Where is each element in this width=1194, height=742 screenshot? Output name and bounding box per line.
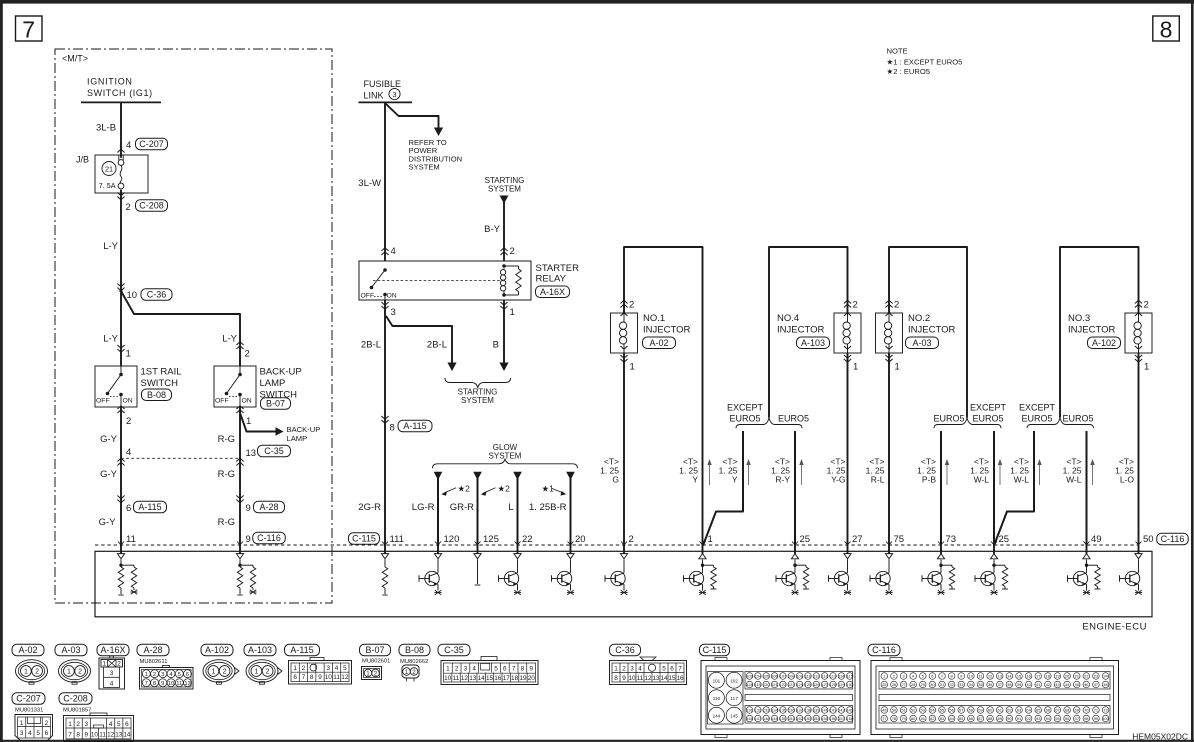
svg-text:19: 19 [519, 675, 527, 682]
svg-text:44: 44 [1065, 682, 1070, 687]
svg-text:EURO5: EURO5 [933, 414, 964, 424]
svg-text:1: 1 [895, 362, 900, 373]
svg-text:4: 4 [335, 665, 339, 672]
svg-text:55: 55 [940, 708, 945, 713]
svg-text:3: 3 [464, 666, 468, 673]
svg-text:NOTE: NOTE [887, 47, 908, 56]
svg-text:1: 1 [510, 307, 515, 318]
svg-text:1: 1 [614, 666, 618, 673]
svg-text:14: 14 [478, 675, 486, 682]
svg-text:EURO5: EURO5 [972, 414, 1003, 424]
svg-text:125: 125 [805, 682, 812, 687]
svg-text:9: 9 [246, 503, 251, 514]
svg-text:INJECTOR: INJECTOR [777, 325, 824, 336]
svg-text:1: 1 [20, 720, 24, 727]
svg-text:B-Y: B-Y [484, 224, 501, 235]
svg-text:C-207: C-207 [16, 694, 41, 704]
svg-text:SYSTEM: SYSTEM [461, 396, 494, 405]
svg-text:12: 12 [461, 675, 469, 682]
svg-text:91: 91 [1017, 716, 1022, 721]
svg-text:C-116: C-116 [1161, 534, 1185, 544]
svg-text:LAMP: LAMP [260, 378, 286, 389]
svg-text:73: 73 [946, 534, 957, 545]
svg-text:63: 63 [1017, 708, 1022, 713]
svg-text:6: 6 [670, 666, 674, 673]
svg-text:2: 2 [853, 300, 858, 311]
svg-text:134: 134 [771, 708, 778, 713]
svg-text:146: 146 [746, 716, 753, 721]
svg-text:126: 126 [813, 682, 820, 687]
svg-text:LG-R: LG-R [412, 502, 435, 513]
svg-text:45: 45 [1074, 682, 1079, 687]
svg-text:<M/T>: <M/T> [62, 54, 88, 64]
svg-text:1: 1 [293, 665, 297, 672]
svg-text:EURO5: EURO5 [729, 414, 760, 424]
svg-text:10: 10 [168, 681, 174, 687]
svg-text:11: 11 [637, 675, 644, 682]
svg-text:2: 2 [1144, 300, 1149, 311]
svg-text:LAMP: LAMP [287, 434, 308, 443]
svg-text:16: 16 [1026, 674, 1031, 679]
svg-text:ON: ON [242, 398, 252, 405]
svg-text:20: 20 [1065, 674, 1070, 679]
svg-text:62: 62 [1007, 708, 1012, 713]
svg-text:1: 1 [446, 666, 450, 673]
svg-text:78: 78 [892, 716, 897, 721]
svg-text:OFF: OFF [96, 398, 110, 405]
svg-text:151: 151 [788, 716, 795, 721]
svg-text:29: 29 [921, 682, 926, 687]
svg-text:1: 1 [708, 534, 713, 545]
svg-text:127: 127 [821, 682, 828, 687]
svg-text:1ST RAIL: 1ST RAIL [141, 367, 182, 378]
svg-text:13: 13 [998, 674, 1003, 679]
svg-text:5: 5 [36, 730, 40, 737]
svg-text:W-L: W-L [1066, 474, 1082, 484]
svg-text:1: 1 [853, 362, 858, 373]
svg-text:A-115: A-115 [290, 645, 313, 655]
svg-text:15: 15 [486, 675, 494, 682]
svg-text:A-115: A-115 [138, 502, 161, 512]
svg-text:11: 11 [126, 534, 136, 545]
svg-text:16: 16 [676, 675, 684, 682]
svg-text:Y: Y [732, 474, 738, 484]
svg-text:53: 53 [921, 708, 926, 713]
svg-text:G-Y: G-Y [100, 434, 118, 445]
svg-text:IGNITION: IGNITION [87, 77, 133, 87]
svg-text:103: 103 [746, 674, 753, 679]
svg-text:C-116: C-116 [257, 533, 281, 543]
svg-text:10: 10 [91, 732, 99, 739]
svg-text:2: 2 [302, 665, 306, 672]
svg-text:89: 89 [998, 716, 1003, 721]
svg-text:★2: ★2 [498, 484, 511, 494]
svg-text:A-28: A-28 [259, 502, 278, 512]
svg-text:72: 72 [1103, 708, 1108, 713]
svg-text:17: 17 [1036, 674, 1041, 679]
svg-text:ON: ON [387, 293, 397, 300]
svg-text:152: 152 [796, 716, 803, 721]
svg-text:A-02: A-02 [18, 645, 37, 655]
svg-text:OFF: OFF [361, 293, 375, 300]
svg-text:11: 11 [333, 674, 340, 681]
svg-text:P-B: P-B [922, 474, 937, 484]
svg-text:W-L: W-L [1014, 474, 1030, 484]
svg-text:8: 8 [153, 681, 156, 687]
svg-text:MU802601: MU802601 [362, 658, 390, 664]
svg-text:2: 2 [629, 300, 634, 311]
svg-text:GR-R: GR-R [450, 502, 474, 513]
svg-text:155: 155 [821, 716, 828, 721]
svg-text:19: 19 [1055, 674, 1060, 679]
svg-text:B-08: B-08 [405, 645, 424, 655]
svg-text:18: 18 [1046, 674, 1051, 679]
svg-text:INJECTOR: INJECTOR [908, 325, 955, 336]
svg-text:8: 8 [1160, 17, 1173, 43]
svg-text:156: 156 [830, 716, 837, 721]
svg-text:34: 34 [969, 682, 974, 687]
svg-text:110: 110 [805, 674, 812, 679]
svg-text:R-G: R-G [218, 469, 235, 480]
svg-text:EURO5: EURO5 [778, 414, 809, 424]
svg-text:A-03: A-03 [61, 645, 80, 655]
svg-text:6: 6 [503, 666, 507, 673]
svg-text:2: 2 [622, 666, 626, 673]
svg-text:A-102: A-102 [1092, 338, 1116, 348]
svg-text:R-Y: R-Y [775, 474, 790, 484]
svg-text:10: 10 [127, 290, 138, 301]
svg-text:14: 14 [1007, 674, 1012, 679]
svg-text:7: 7 [22, 17, 35, 43]
svg-text:145: 145 [730, 713, 738, 718]
svg-text:15: 15 [1017, 674, 1022, 679]
svg-text:27: 27 [901, 682, 906, 687]
svg-text:4: 4 [109, 721, 113, 728]
svg-text:100: 100 [1102, 716, 1109, 721]
svg-text:20: 20 [575, 534, 586, 545]
svg-text:105: 105 [763, 674, 770, 679]
svg-text:30: 30 [930, 682, 935, 687]
svg-text:4: 4 [28, 730, 32, 737]
svg-text:107: 107 [780, 674, 787, 679]
svg-text:L-O: L-O [1120, 474, 1135, 484]
svg-text:B: B [493, 340, 499, 351]
svg-text:138: 138 [805, 708, 812, 713]
svg-text:2: 2 [245, 349, 250, 360]
svg-text:INJECTOR: INJECTOR [643, 325, 690, 336]
svg-text:114: 114 [838, 674, 845, 679]
svg-text:A-03: A-03 [912, 338, 931, 348]
svg-text:137: 137 [796, 708, 803, 713]
svg-text:BACK-UP: BACK-UP [287, 425, 321, 434]
svg-text:96: 96 [1065, 716, 1070, 721]
svg-text:NO.1: NO.1 [643, 313, 665, 324]
svg-text:2: 2 [374, 670, 378, 677]
svg-text:7: 7 [145, 681, 148, 687]
svg-text:4: 4 [110, 680, 114, 687]
svg-text:12: 12 [644, 675, 652, 682]
svg-text:40: 40 [1026, 682, 1031, 687]
svg-text:21: 21 [1074, 674, 1079, 679]
svg-text:C-35: C-35 [444, 645, 464, 655]
svg-text:22: 22 [522, 534, 533, 545]
svg-text:158: 158 [846, 716, 853, 721]
svg-text:16: 16 [494, 675, 502, 682]
svg-text:65: 65 [1036, 708, 1041, 713]
svg-text:149: 149 [771, 716, 778, 721]
svg-text:1: 1 [630, 362, 635, 373]
svg-text:LINK: LINK [364, 90, 384, 100]
svg-text:122: 122 [780, 682, 787, 687]
svg-text:119: 119 [755, 682, 762, 687]
svg-text:A-115: A-115 [403, 421, 426, 431]
svg-text:8: 8 [521, 666, 525, 673]
svg-text:59: 59 [978, 708, 983, 713]
svg-text:A-103: A-103 [248, 645, 272, 655]
svg-text:136: 136 [788, 708, 795, 713]
svg-text:41: 41 [1036, 682, 1041, 687]
svg-text:STARTER: STARTER [536, 263, 580, 274]
svg-text:23: 23 [1094, 674, 1099, 679]
svg-text:6: 6 [45, 730, 49, 737]
svg-text:52: 52 [911, 708, 916, 713]
svg-text:113: 113 [830, 674, 837, 679]
svg-text:L-Y: L-Y [222, 334, 237, 345]
svg-text:3: 3 [85, 721, 89, 728]
svg-text:135: 135 [780, 708, 787, 713]
svg-text:4: 4 [126, 140, 131, 151]
svg-text:C-115: C-115 [703, 645, 727, 655]
svg-text:69: 69 [1074, 708, 1079, 713]
svg-text:1: 1 [145, 672, 148, 678]
svg-text:4: 4 [638, 666, 642, 673]
svg-text:43: 43 [1055, 682, 1060, 687]
svg-text:3: 3 [110, 670, 114, 677]
svg-text:3: 3 [327, 665, 331, 672]
svg-text:1: 1 [1144, 362, 1149, 373]
svg-text:80: 80 [911, 716, 916, 721]
svg-text:93: 93 [1036, 716, 1041, 721]
svg-text:RELAY: RELAY [536, 274, 567, 285]
svg-text:5: 5 [662, 666, 666, 673]
svg-text:5: 5 [494, 666, 498, 673]
svg-text:104: 104 [755, 674, 762, 679]
svg-text:13: 13 [246, 448, 257, 459]
svg-text:88: 88 [988, 716, 993, 721]
svg-text:L-Y: L-Y [103, 241, 118, 252]
svg-text:8: 8 [76, 732, 80, 739]
svg-text:6: 6 [126, 503, 131, 514]
svg-text:C-36: C-36 [615, 645, 635, 655]
svg-text:13: 13 [652, 675, 660, 682]
svg-text:G: G [612, 474, 619, 484]
svg-text:57: 57 [959, 708, 964, 713]
svg-text:142: 142 [838, 708, 845, 713]
svg-text:12: 12 [107, 732, 115, 739]
svg-text:INJECTOR: INJECTOR [1068, 325, 1115, 336]
svg-text:1: 1 [366, 670, 370, 677]
svg-text:2: 2 [455, 666, 459, 673]
svg-text:46: 46 [1084, 682, 1089, 687]
svg-text:2: 2 [629, 534, 634, 545]
svg-text:NO.2: NO.2 [908, 313, 930, 324]
svg-text:2: 2 [266, 669, 270, 676]
svg-text:71: 71 [1094, 708, 1099, 713]
svg-text:128: 128 [830, 682, 837, 687]
svg-text:EURO5: EURO5 [1021, 414, 1052, 424]
svg-text:10: 10 [325, 674, 333, 681]
svg-text:25: 25 [800, 534, 811, 545]
svg-text:18: 18 [511, 675, 519, 682]
svg-text:140: 140 [821, 708, 828, 713]
svg-text:20: 20 [528, 675, 536, 682]
svg-text:92: 92 [1026, 716, 1031, 721]
svg-text:42: 42 [1046, 682, 1051, 687]
svg-text:2B-L: 2B-L [427, 340, 447, 351]
svg-text:10: 10 [628, 675, 636, 682]
svg-text:HEM05X02DC: HEM05X02DC [1132, 732, 1188, 742]
svg-text:6: 6 [186, 672, 189, 678]
svg-text:ON: ON [123, 398, 133, 405]
svg-text:144: 144 [713, 713, 721, 718]
svg-text:4: 4 [472, 666, 476, 673]
svg-text:6: 6 [293, 674, 297, 681]
svg-text:R-G: R-G [218, 434, 235, 445]
svg-text:38: 38 [1007, 682, 1012, 687]
svg-text:2: 2 [412, 669, 416, 676]
svg-text:C-115: C-115 [352, 534, 376, 544]
svg-text:27: 27 [852, 534, 863, 545]
svg-text:66: 66 [1046, 708, 1051, 713]
svg-text:6: 6 [125, 721, 129, 728]
svg-text:EURO5: EURO5 [1062, 414, 1093, 424]
svg-text:148: 148 [763, 716, 770, 721]
svg-text:A-28: A-28 [143, 645, 162, 655]
svg-text:111: 111 [390, 534, 404, 545]
svg-text:60: 60 [988, 708, 993, 713]
svg-text:35: 35 [978, 682, 983, 687]
svg-text:7: 7 [678, 666, 682, 673]
svg-text:61: 61 [998, 708, 1003, 713]
svg-text:139: 139 [813, 708, 820, 713]
svg-text:NO.4: NO.4 [777, 313, 799, 324]
svg-text:77: 77 [882, 716, 887, 721]
svg-text:SYSTEM: SYSTEM [488, 184, 521, 193]
svg-text:7: 7 [512, 666, 516, 673]
svg-text:95: 95 [1055, 716, 1060, 721]
svg-text:111: 111 [813, 674, 820, 679]
svg-text:SWITCH: SWITCH [141, 378, 179, 389]
svg-text:2: 2 [78, 669, 82, 676]
svg-text:133: 133 [763, 708, 770, 713]
svg-text:157: 157 [838, 716, 845, 721]
svg-text:9: 9 [161, 681, 164, 687]
svg-text:83: 83 [940, 716, 945, 721]
svg-text:MU802662: MU802662 [400, 659, 428, 665]
svg-text:MU801331: MU801331 [15, 708, 43, 714]
svg-text:2: 2 [45, 720, 49, 727]
svg-text:141: 141 [830, 708, 837, 713]
svg-text:W-L: W-L [974, 474, 990, 484]
svg-text:NO.3: NO.3 [1068, 313, 1090, 324]
svg-text:B-07: B-07 [365, 645, 384, 655]
svg-text:25: 25 [882, 682, 887, 687]
svg-text:9: 9 [246, 534, 251, 545]
svg-text:124: 124 [796, 682, 803, 687]
svg-text:64: 64 [1026, 708, 1031, 713]
svg-text:131: 131 [746, 708, 753, 713]
svg-text:B-08: B-08 [147, 390, 166, 400]
svg-text:2G-R: 2G-R [358, 502, 381, 513]
svg-text:9: 9 [318, 674, 322, 681]
svg-text:154: 154 [813, 716, 820, 721]
svg-text:2B-L: 2B-L [361, 340, 381, 351]
svg-text:FUSIBLE: FUSIBLE [364, 79, 402, 89]
svg-text:2: 2 [35, 669, 39, 676]
svg-text:1: 1 [68, 721, 72, 728]
svg-text:EXCEPT: EXCEPT [1019, 403, 1056, 413]
svg-text:1: 1 [24, 669, 28, 676]
svg-text:5: 5 [178, 672, 181, 678]
svg-text:132: 132 [755, 708, 762, 713]
svg-text:4: 4 [126, 447, 131, 458]
svg-text:99: 99 [1094, 716, 1099, 721]
svg-text:3: 3 [630, 666, 634, 673]
svg-text:12: 12 [988, 674, 993, 679]
svg-text:70: 70 [1084, 708, 1089, 713]
svg-text:2: 2 [153, 672, 156, 678]
svg-text:2: 2 [76, 721, 80, 728]
svg-text:R-L: R-L [871, 474, 885, 484]
svg-text:1: 1 [405, 669, 409, 676]
svg-text:3L-B: 3L-B [96, 123, 116, 134]
svg-text:3: 3 [392, 90, 396, 99]
svg-text:2: 2 [126, 416, 131, 427]
svg-text:BACK-UP: BACK-UP [260, 367, 302, 378]
svg-text:G-Y: G-Y [100, 469, 118, 480]
svg-text:67: 67 [1055, 708, 1060, 713]
svg-text:8: 8 [310, 674, 314, 681]
svg-text:1: 1 [211, 669, 215, 676]
svg-text:EXCEPT: EXCEPT [727, 403, 764, 413]
svg-text:36: 36 [988, 682, 993, 687]
svg-text:8: 8 [390, 423, 395, 434]
svg-text:58: 58 [969, 708, 974, 713]
svg-text:L: L [508, 502, 513, 513]
svg-text:50: 50 [1143, 534, 1154, 545]
svg-text:116: 116 [713, 696, 721, 701]
svg-text:150: 150 [780, 716, 787, 721]
svg-text:1: 1 [126, 349, 131, 360]
svg-text:68: 68 [1065, 708, 1070, 713]
svg-text:3: 3 [20, 730, 24, 737]
svg-text:49: 49 [1091, 534, 1102, 545]
svg-text:56: 56 [949, 708, 954, 713]
svg-text:8: 8 [614, 675, 618, 682]
svg-text:9: 9 [529, 666, 533, 673]
svg-text:49: 49 [882, 708, 887, 713]
svg-text:1: 1 [67, 669, 71, 676]
svg-text:94: 94 [1046, 716, 1051, 721]
svg-text:129: 129 [838, 682, 845, 687]
svg-text:A-02: A-02 [649, 338, 668, 348]
svg-text:10: 10 [969, 674, 974, 679]
svg-text:2: 2 [510, 246, 515, 257]
svg-text:2: 2 [894, 300, 899, 311]
svg-text:R-G: R-G [218, 517, 235, 528]
svg-text:147: 147 [755, 716, 762, 721]
svg-text:117: 117 [730, 696, 738, 701]
